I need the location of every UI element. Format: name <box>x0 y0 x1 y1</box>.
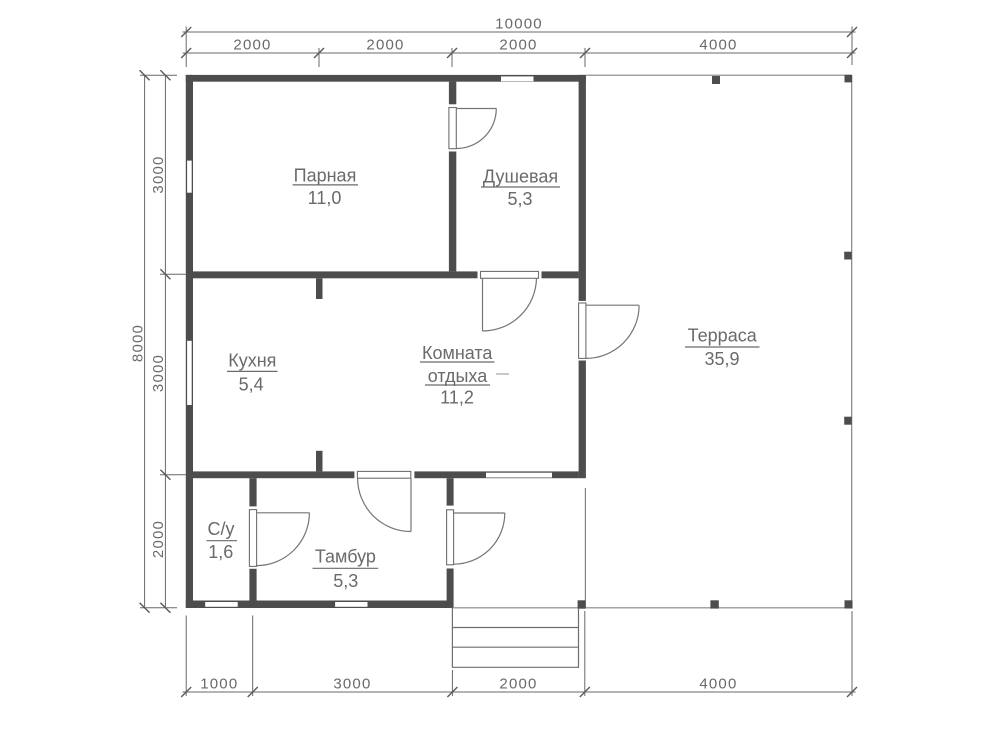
svg-text:2000: 2000 <box>150 520 167 558</box>
svg-text:1000: 1000 <box>200 676 238 693</box>
svg-text:Парная: Парная <box>294 166 357 186</box>
svg-text:5,4: 5,4 <box>239 374 264 394</box>
svg-text:Терраса: Терраса <box>688 326 758 346</box>
svg-text:5,3: 5,3 <box>333 571 358 591</box>
svg-text:Тамбур: Тамбур <box>315 547 376 567</box>
svg-text:11,2: 11,2 <box>440 387 474 407</box>
svg-text:8000: 8000 <box>129 324 146 362</box>
svg-text:С/у: С/у <box>208 519 235 539</box>
svg-text:1,6: 1,6 <box>208 542 233 562</box>
svg-text:2000: 2000 <box>499 37 537 54</box>
svg-text:3000: 3000 <box>150 354 167 392</box>
svg-text:2000: 2000 <box>499 676 537 693</box>
svg-text:4000: 4000 <box>699 37 737 54</box>
svg-text:3000: 3000 <box>333 676 371 693</box>
svg-text:Комната: Комната <box>422 343 493 363</box>
svg-text:2000: 2000 <box>233 37 271 54</box>
svg-text:5,3: 5,3 <box>507 189 532 209</box>
svg-text:Душевая: Душевая <box>483 167 558 187</box>
svg-text:10000: 10000 <box>495 15 543 32</box>
svg-text:3000: 3000 <box>150 155 167 193</box>
svg-text:4000: 4000 <box>699 676 737 693</box>
svg-text:Кухня: Кухня <box>228 350 276 370</box>
svg-text:11,0: 11,0 <box>308 188 342 208</box>
svg-text:2000: 2000 <box>366 37 404 54</box>
svg-text:35,9: 35,9 <box>704 349 739 369</box>
svg-text:отдыха: отдыха <box>428 366 489 386</box>
